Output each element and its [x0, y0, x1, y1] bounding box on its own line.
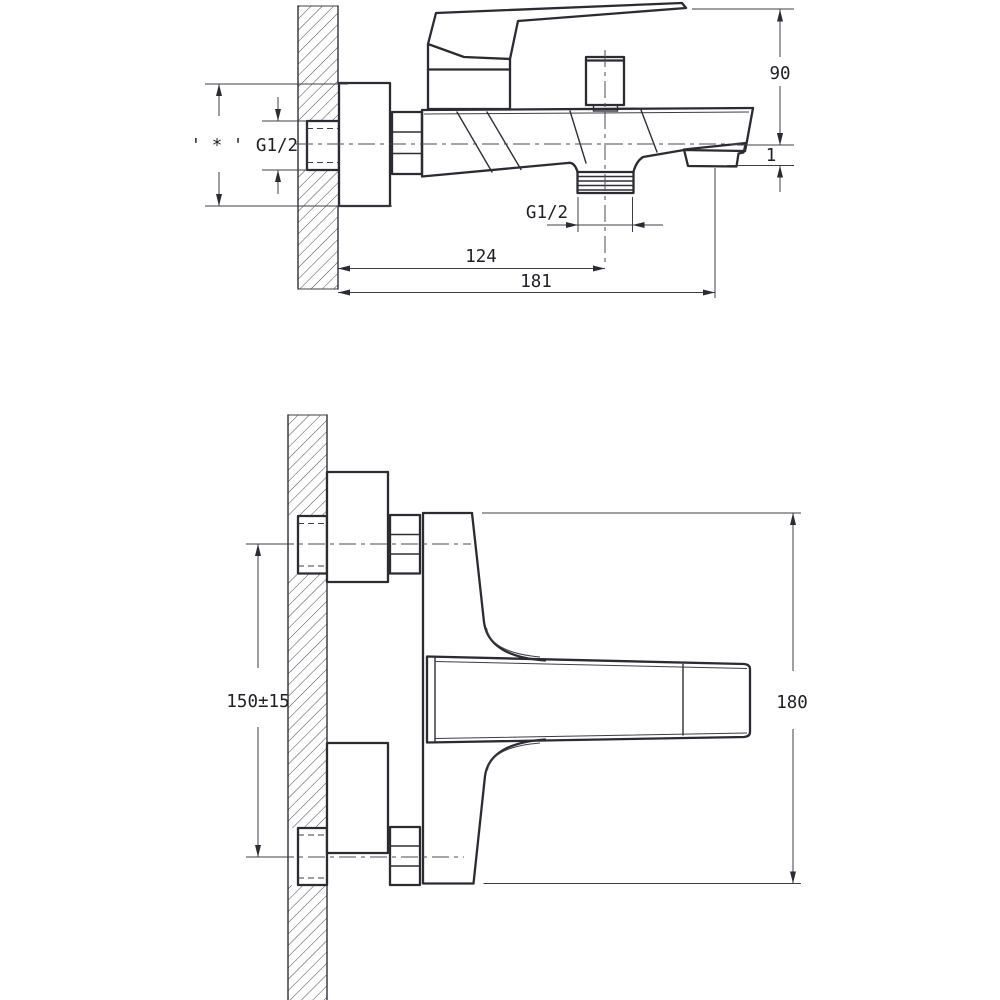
spout-outlet: [684, 143, 746, 167]
dim-label-star: ' * ': [191, 136, 244, 156]
dim-181: 181: [338, 168, 715, 298]
drawing-page: ' * ' G1/2 90 1 G1/2: [0, 0, 1000, 1000]
dim-150: 150±15: [226, 544, 293, 857]
escutcheon-top: [327, 472, 388, 582]
lever-handle-front: [427, 657, 750, 743]
view-front: 150±15 180: [226, 415, 807, 1000]
lever-handle: [428, 3, 686, 109]
technical-drawing: ' * ' G1/2 90 1 G1/2: [0, 0, 1000, 1000]
dim-outlet-thread: G1/2: [526, 197, 663, 232]
dim-label-124: 124: [465, 247, 497, 267]
hex-nut-bottom: [390, 827, 420, 885]
hex-nut: [392, 112, 422, 174]
dim-label-181: 181: [520, 272, 552, 292]
dim-label-150: 150±15: [226, 692, 289, 712]
inlet-stub-top: [298, 516, 327, 574]
wall-section-front: [288, 415, 327, 1000]
dim-180: 180: [482, 513, 808, 884]
dim-label-outlet-thread: G1/2: [526, 203, 568, 223]
dim-label-1: 1: [766, 146, 777, 166]
dim-label-180: 180: [776, 693, 808, 713]
dim-124: 124: [338, 247, 605, 269]
view-side-profile: ' * ' G1/2 90 1 G1/2: [191, 3, 794, 298]
dim-label-90: 90: [769, 64, 790, 84]
dim-90: 90: [692, 9, 794, 145]
dim-label-inlet-thread: G1/2: [256, 136, 298, 156]
faucet-body-front: [423, 513, 545, 884]
escutcheon-bottom: [327, 743, 388, 853]
inlet-pipe-stub: [307, 121, 339, 170]
